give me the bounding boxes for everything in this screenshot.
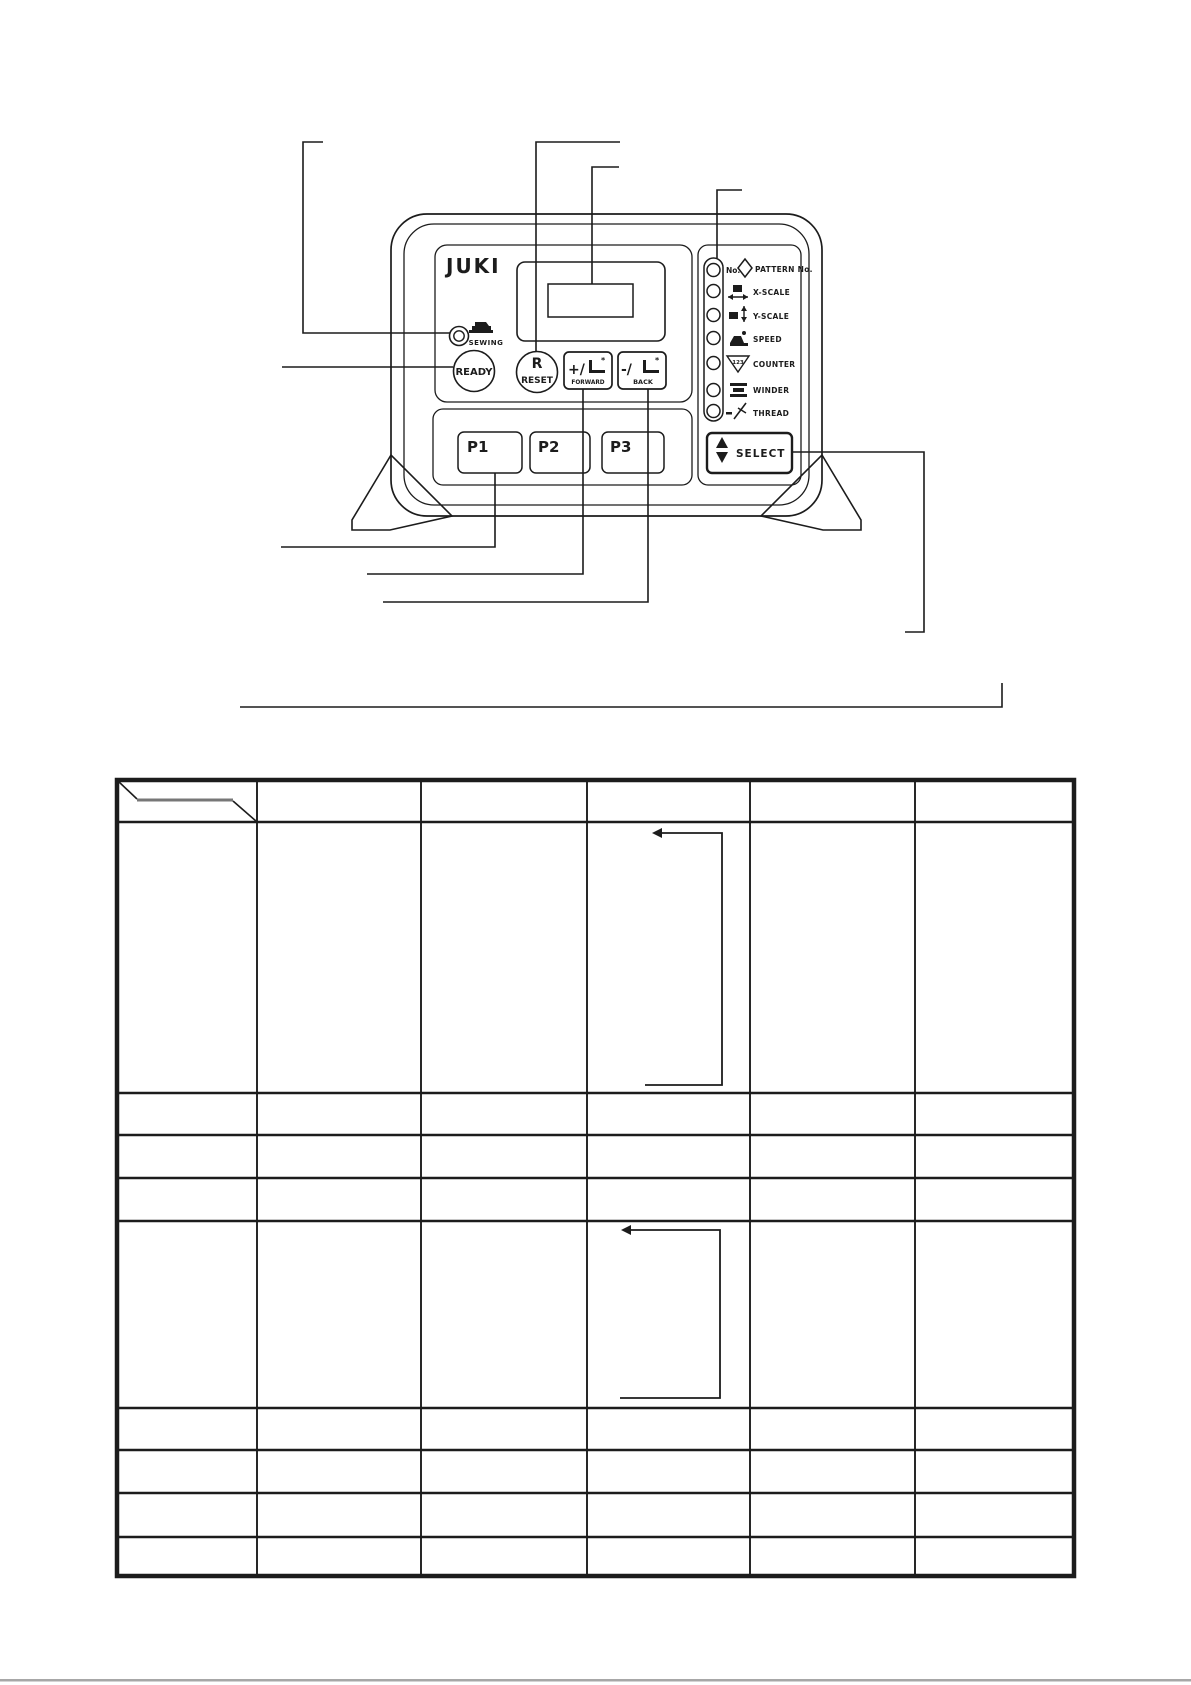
legend-label: PATTERN No.: [755, 265, 813, 274]
select-label: SELECT: [736, 448, 785, 460]
led-thread: [707, 405, 720, 418]
legend-label: X-SCALE: [753, 288, 790, 297]
ready-button: READY: [454, 351, 495, 392]
scan-artifact-line: [0, 1679, 1191, 1682]
p3-button: P3: [602, 432, 664, 473]
manual-page: JUKI SEWING READY R RESET +/: [0, 0, 1191, 1685]
legend-winder: WINDER: [730, 383, 789, 397]
svg-text:*: *: [655, 356, 660, 365]
callout-line-p1: [281, 473, 495, 547]
y-scale-icon: [729, 306, 747, 322]
led-winder: [707, 384, 720, 397]
led-lights: [707, 264, 720, 418]
sewing-led: [450, 327, 469, 346]
callout-line-sewing: [303, 142, 450, 333]
winder-icon: [730, 383, 747, 397]
presser-foot-icon: *: [643, 356, 660, 373]
forward-label: FORWARD: [571, 380, 604, 386]
led-speed: [707, 332, 720, 345]
juki-logo: JUKI: [444, 254, 501, 278]
lcd-display: [548, 284, 633, 317]
legend-counter: 123 COUNTER: [727, 356, 795, 372]
led-y-scale: [707, 309, 720, 322]
table-arrow-annotation-1: [645, 828, 722, 1085]
back-button: -/ * BACK: [618, 352, 666, 389]
legend-label: WINDER: [753, 386, 789, 395]
p2-label: P2: [538, 438, 559, 456]
p1-button: P1: [458, 432, 522, 473]
legend-label: COUNTER: [753, 360, 795, 369]
legend-label: THREAD: [753, 409, 789, 418]
legend-speed: SPEED: [730, 331, 782, 346]
led-pattern-no: [707, 264, 720, 277]
sewing-label: SEWING: [469, 339, 504, 347]
table-row-lines: [115, 822, 1076, 1537]
callout-line-reset: [536, 142, 620, 351]
led-x-scale: [707, 285, 720, 298]
ready-label: READY: [455, 367, 493, 378]
legend-pattern-no: No. PATTERN No.: [726, 259, 813, 277]
led-counter: [707, 357, 720, 370]
callout-line-select: [792, 452, 924, 632]
speed-icon: [730, 331, 748, 346]
figure-caption-bracket: [240, 683, 1002, 707]
legend-label: SPEED: [753, 335, 782, 344]
back-symbol: -/: [621, 362, 633, 378]
callout-line-lcd: [592, 167, 619, 284]
x-scale-icon: [728, 285, 748, 300]
sewing-indicator: SEWING: [450, 322, 504, 347]
forward-symbol: +/: [568, 362, 586, 378]
p2-button: P2: [530, 432, 590, 473]
table-arrow-annotation-2: [620, 1225, 720, 1398]
presser-foot-icon: *: [589, 356, 606, 373]
reset-button: R RESET: [517, 352, 558, 393]
callout-line-back: [383, 389, 648, 602]
p1-label: P1: [467, 438, 488, 456]
sewing-machine-icon: [469, 322, 493, 333]
counter-icon: 123: [727, 356, 749, 372]
header-diagonal-divider: [118, 781, 256, 821]
legend-label: Y-SCALE: [752, 312, 789, 321]
legend-thread: THREAD: [726, 403, 789, 419]
arrow-left-head: [652, 828, 662, 838]
legend-x-scale: X-SCALE: [728, 285, 790, 300]
forward-button: +/ * FORWARD: [564, 352, 612, 389]
arrow-left-head: [621, 1225, 631, 1235]
up-down-arrows-icon: [716, 437, 728, 463]
thread-icon: [726, 403, 746, 419]
svg-text:123: 123: [732, 360, 744, 366]
control-panel-figure: JUKI SEWING READY R RESET +/: [352, 214, 861, 530]
reset-label: RESET: [521, 376, 554, 386]
display-module: [517, 262, 665, 341]
callout-lines: [240, 142, 1002, 707]
p3-label: P3: [610, 438, 631, 456]
reference-table: [115, 778, 1076, 1578]
left-foot: [352, 455, 452, 530]
legend-y-scale: Y-SCALE: [729, 306, 789, 322]
svg-text:*: *: [601, 356, 606, 365]
reset-letter: R: [532, 356, 543, 372]
back-label: BACK: [633, 378, 654, 386]
select-button: SELECT: [707, 433, 792, 473]
right-foot: [761, 455, 861, 530]
